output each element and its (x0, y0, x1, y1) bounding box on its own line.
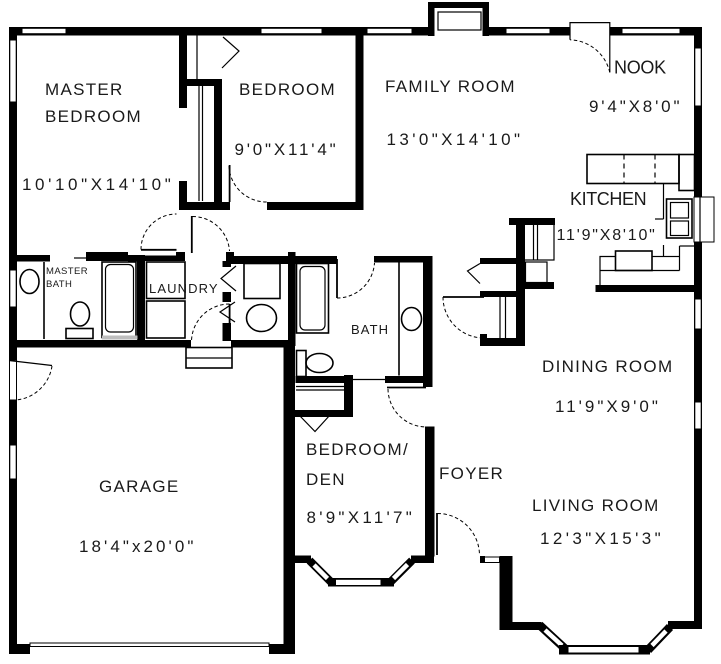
svg-text:DEN: DEN (306, 470, 346, 489)
svg-text:8'9"X11'7": 8'9"X11'7" (307, 508, 416, 527)
svg-text:BEDROOM: BEDROOM (45, 107, 142, 126)
svg-text:12'3"X15'3": 12'3"X15'3" (540, 529, 664, 548)
svg-text:11'9"X9'0": 11'9"X9'0" (555, 397, 661, 416)
svg-text:BEDROOM/: BEDROOM/ (306, 440, 409, 459)
svg-text:11'9"X8'10": 11'9"X8'10" (557, 227, 657, 244)
svg-text:LIVING ROOM: LIVING ROOM (532, 496, 660, 515)
svg-text:BEDROOM: BEDROOM (239, 80, 336, 99)
svg-text:FOYER: FOYER (439, 464, 504, 483)
svg-text:13'0"X14'10": 13'0"X14'10" (387, 130, 524, 149)
svg-text:FAMILY ROOM: FAMILY ROOM (385, 77, 516, 96)
svg-text:GARAGE: GARAGE (99, 477, 180, 496)
svg-text:MASTER: MASTER (46, 266, 88, 277)
svg-text:LAUNDRY: LAUNDRY (149, 281, 219, 296)
svg-text:10'10"X14'10": 10'10"X14'10" (22, 175, 174, 194)
svg-text:BATH: BATH (351, 322, 389, 337)
svg-text:9'4"X8'0": 9'4"X8'0" (589, 97, 682, 116)
svg-text:BATH: BATH (46, 279, 72, 290)
svg-text:NOOK: NOOK (614, 58, 666, 78)
svg-text:18'4"x20'0": 18'4"x20'0" (79, 537, 196, 556)
svg-text:KITCHEN: KITCHEN (570, 189, 646, 209)
svg-text:MASTER: MASTER (45, 80, 124, 99)
svg-text:DINING ROOM: DINING ROOM (542, 357, 673, 376)
svg-text:9'0"X11'4": 9'0"X11'4" (235, 140, 339, 159)
